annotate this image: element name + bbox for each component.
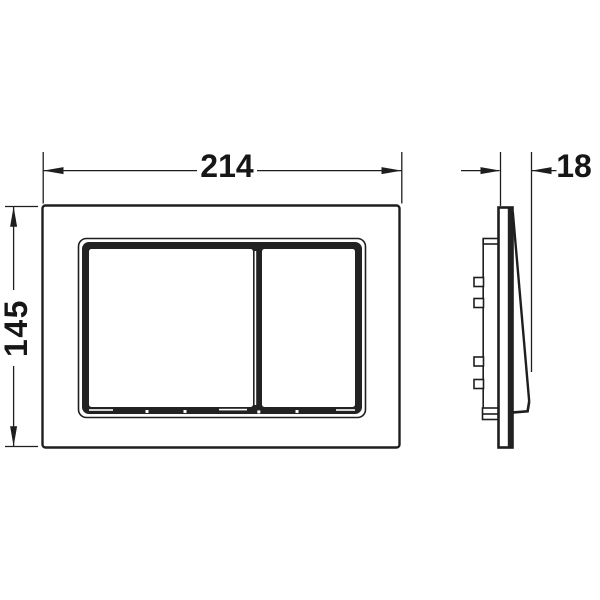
technical-drawing-canvas: 214 145 18 xyxy=(0,0,600,600)
front-view xyxy=(43,206,400,448)
arrowhead-left-icon xyxy=(532,167,552,174)
bevel-highlight-dash xyxy=(219,409,247,411)
small-flush-button xyxy=(262,249,355,407)
fixing-clip xyxy=(474,278,484,287)
side-view xyxy=(474,208,529,448)
tilted-button-foot xyxy=(512,402,529,413)
bevel-dot-mark xyxy=(146,410,149,413)
arrowhead-up-icon xyxy=(10,207,17,227)
bevel-highlight-dash xyxy=(336,409,355,411)
frame-top-flange xyxy=(483,239,498,245)
arrowhead-down-icon xyxy=(10,426,17,446)
arrowhead-left-icon xyxy=(43,167,63,174)
fixing-clip xyxy=(474,357,484,366)
bevel-highlight-dash xyxy=(89,409,113,411)
dimension-width: 214 xyxy=(43,148,402,204)
tilted-button-edge xyxy=(513,212,529,402)
arrowhead-right-icon xyxy=(382,167,402,174)
button-divider-slit xyxy=(255,251,257,405)
fixing-clip xyxy=(474,299,484,308)
bevel-dot-mark xyxy=(257,410,260,413)
large-flush-button xyxy=(89,249,253,407)
dimension-height: 145 xyxy=(0,207,38,447)
height-value-label: 145 xyxy=(0,299,34,357)
dimension-depth: 18 xyxy=(461,148,592,372)
plate-side-face xyxy=(508,209,513,447)
bevel-dot-mark xyxy=(296,410,299,413)
fixing-clip xyxy=(474,380,484,389)
depth-value-label: 18 xyxy=(556,148,592,184)
width-value-label: 214 xyxy=(200,148,254,184)
flush-plate-dimension-drawing: 214 145 18 xyxy=(0,0,600,600)
bevel-dot-mark xyxy=(184,410,187,413)
arrowhead-right-icon xyxy=(481,167,501,174)
